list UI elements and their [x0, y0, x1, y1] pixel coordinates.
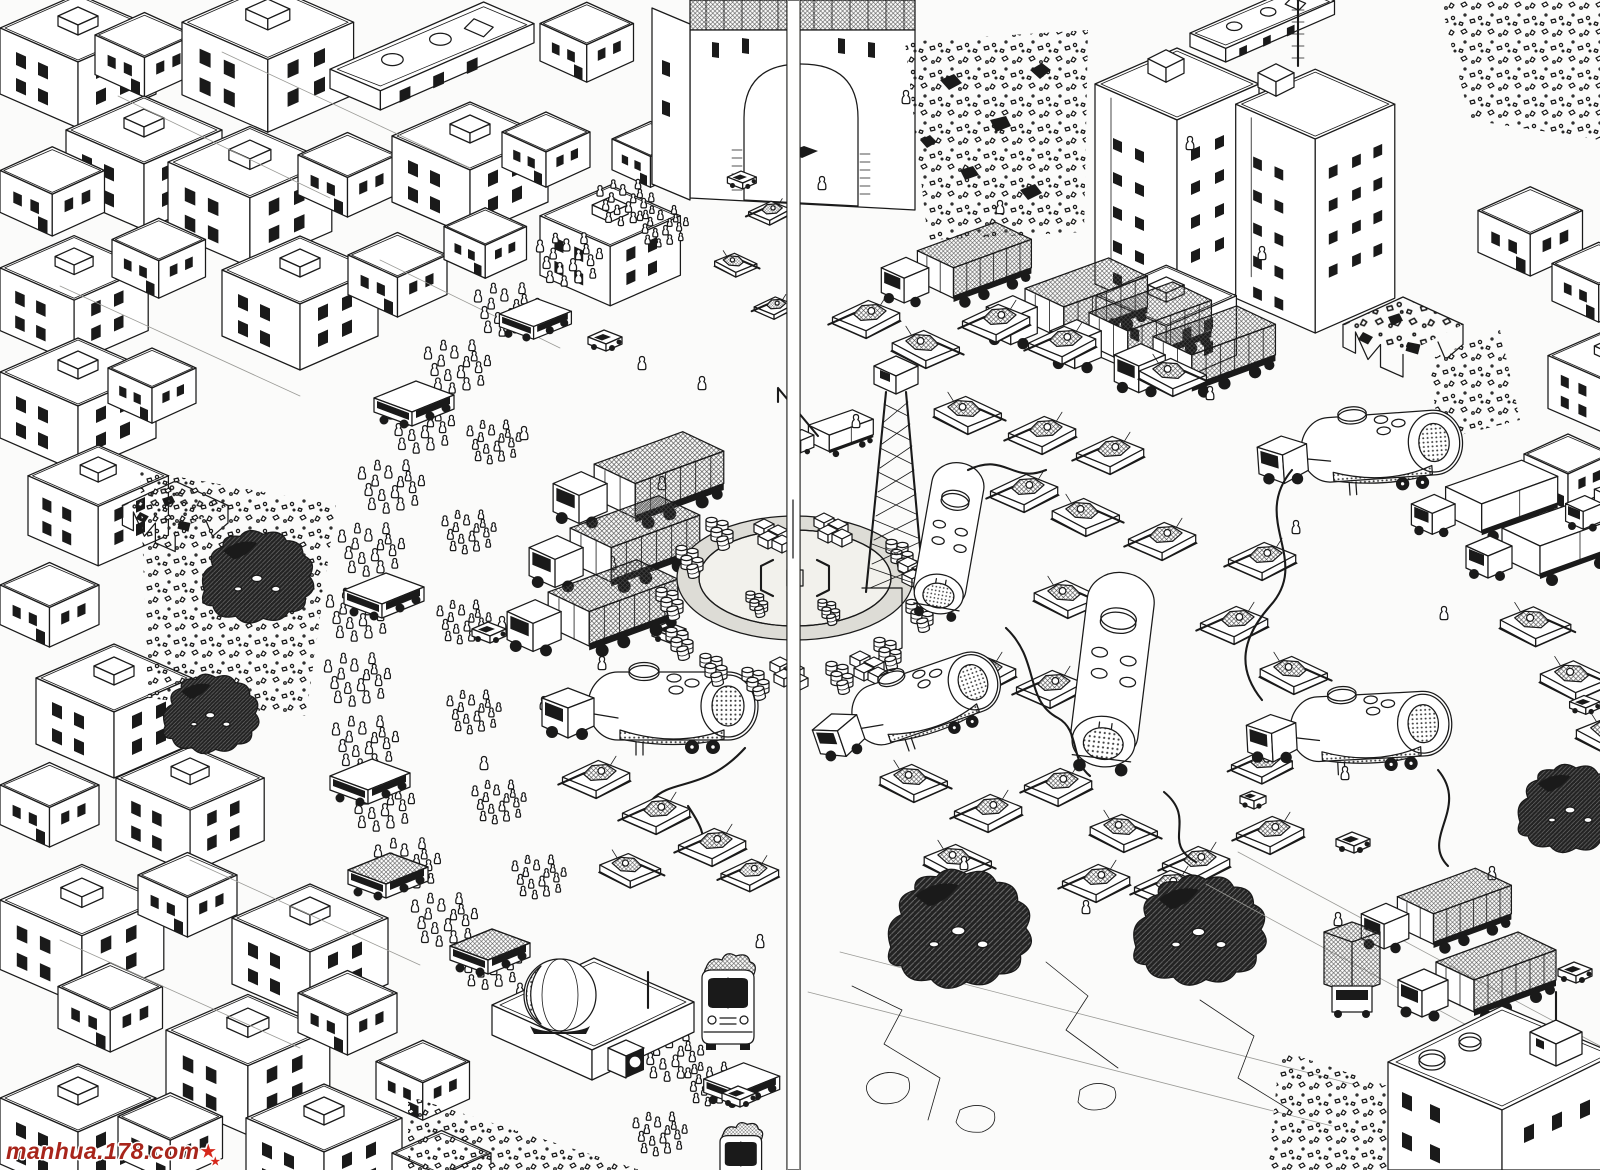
city-gate — [652, 0, 915, 210]
page-gutter — [787, 0, 800, 1170]
watermark: manhua.178.com★★ — [6, 1138, 221, 1168]
star-icon: ★ — [210, 1156, 220, 1168]
manga-double-page-spread: manhua.178.com★★ — [0, 0, 1600, 1170]
spread-illustration — [0, 0, 1600, 1170]
watermark-text: manhua.178.com — [6, 1138, 200, 1164]
